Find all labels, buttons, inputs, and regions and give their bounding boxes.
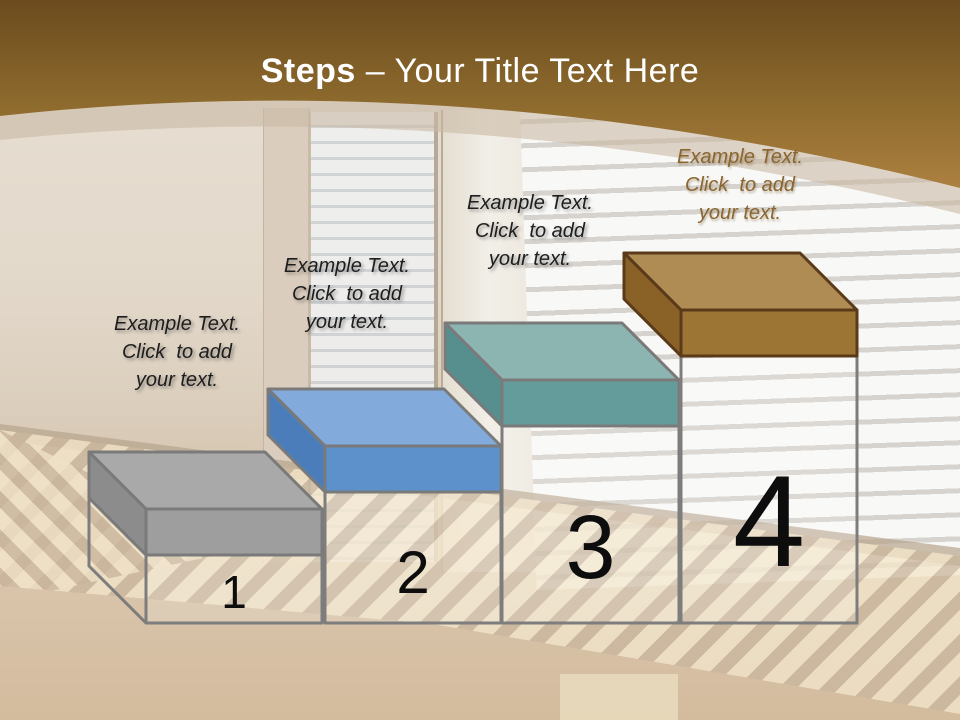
step-3-slab-front [502,380,679,426]
step-2-slab-front [325,446,501,492]
step-3-placeholder-label[interactable]: Example Text. Click to add your text. [420,189,640,273]
step-4-number: 4 [681,456,857,586]
step-2-number: 2 [325,543,501,603]
step-1-slab-front [146,509,322,555]
step-3-number: 3 [502,503,679,593]
slide-title[interactable]: Steps – Your Title Text Here [0,52,960,91]
title-keyword: Steps [261,52,356,90]
step-4-placeholder-label[interactable]: Example Text. Click to add your text. [630,143,850,227]
title-rest: – Your Title Text Here [366,52,700,90]
step-1-number: 1 [146,569,322,615]
slide-canvas: Steps – Your Title Text Here Example Tex… [0,0,960,720]
step-4-slab-front [681,310,857,356]
